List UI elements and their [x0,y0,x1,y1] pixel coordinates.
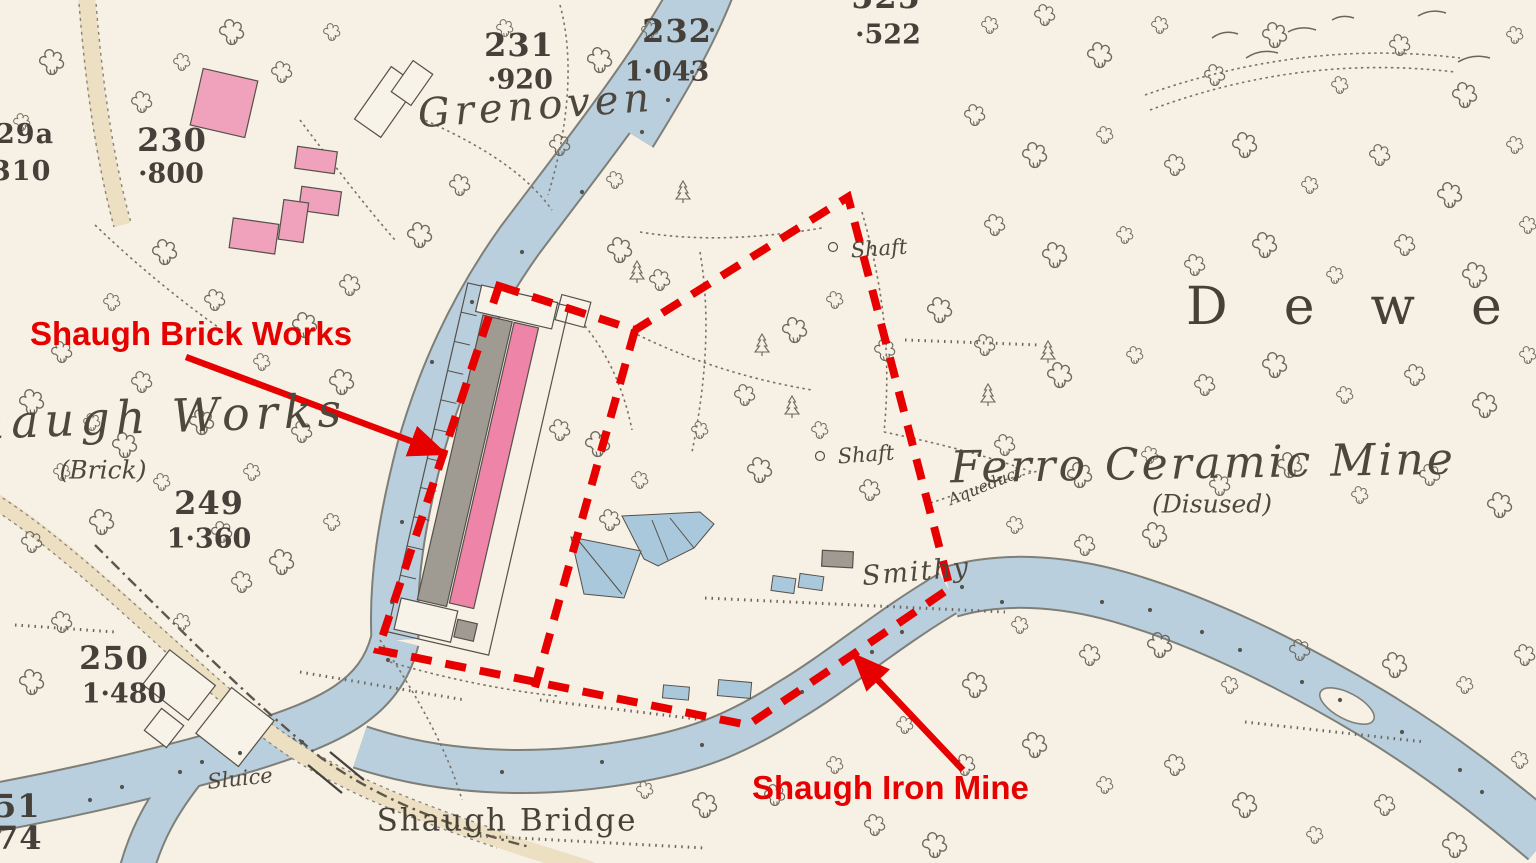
parcel-number: 250 [79,642,149,674]
stipple-dot [200,760,204,764]
annotation-brick-works: Shaugh Brick Works [30,317,352,350]
stipple-dot [470,300,474,304]
stipple-dot [120,785,124,789]
stipple-dot [870,650,874,654]
stipple-dot [1338,698,1342,702]
stipple-dot [178,770,182,774]
parcel-number: 51 [0,790,41,822]
farm-building [278,200,308,243]
stipple-dot [900,630,904,634]
smithy-building [822,550,854,568]
place-label-ferro-ceramic-mine: Ferro Ceramic Mine [950,438,1456,491]
stipple-dot [88,798,92,802]
parcel-number: 249 [174,487,244,519]
stipple-dot [1458,768,1462,772]
stipple-dot [1400,730,1404,734]
parcel-area: ·522 [855,22,921,49]
parcel-area: 310 [0,158,51,185]
place-label-dewe: Dewe [1186,281,1536,333]
parcel-number: 74 [0,822,43,854]
stipple-dot [1100,600,1104,604]
stipple-dot [1300,680,1304,684]
place-label-shaugh-bridge: Shaugh Bridge [377,806,638,837]
stipple-dot [700,743,704,747]
place-label-brick: (Brick) [60,458,147,483]
stipple-dot [1148,608,1152,612]
parcel-number: 232 [642,15,712,47]
parcel-number: 231 [484,29,554,61]
stipple-dot [600,760,604,764]
stipple-dot [640,130,644,134]
parcel-area: 1·360 [167,526,252,553]
place-label-shaft-lower: Shaft [837,443,895,468]
stipple-dot [238,751,242,755]
place-label-shaft-upper: Shaft [850,237,908,262]
historic-map: 231 ·920 232 1·043 525 ·522 29a 310 230 … [0,0,1536,863]
parcel-number: 525 [851,0,921,13]
stipple-dot [1000,600,1004,604]
parcel-number: 29a [0,121,54,148]
stipple-dot [1480,790,1484,794]
place-label-disused: (Disused) [1152,492,1272,517]
farm-building [295,146,338,173]
stipple-dot [300,740,304,744]
stipple-dot [960,585,964,589]
stipple-dot [386,658,390,662]
parcel-number: 230 [137,124,207,156]
parcel-area: ·800 [138,161,204,188]
place-label-shaugh-works: Shaugh Works [0,387,348,447]
stipple-dot [430,360,434,364]
stipple-dot [520,250,524,254]
stipple-dot [400,520,404,524]
parcel-area: 1·480 [82,681,167,708]
annotation-iron-mine: Shaugh Iron Mine [752,771,1029,804]
stipple-dot [500,770,504,774]
stipple-dot [1238,648,1242,652]
stipple-dot [1200,630,1204,634]
stipple-dot [666,98,670,102]
stipple-dot [580,190,584,194]
farm-building [229,218,279,254]
